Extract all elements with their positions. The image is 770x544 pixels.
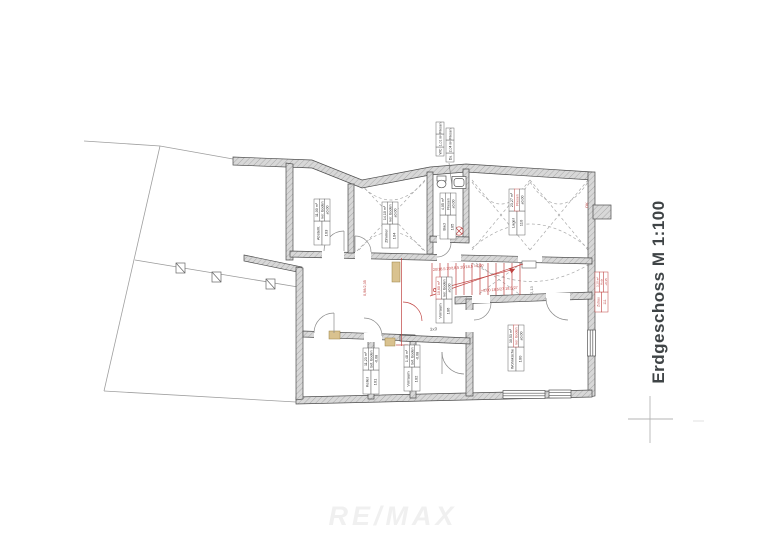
room-name: Du. <box>448 155 452 161</box>
parcel-boundary <box>84 141 296 402</box>
wc-toilet <box>437 180 446 188</box>
room-level: ±0,00 <box>448 284 452 293</box>
room-label-keller: Keller 101 11,23 m² bet. Boden -0,08 <box>363 348 379 394</box>
room-number: 106 <box>446 307 451 314</box>
room-level: ±0,00 <box>452 200 456 209</box>
dim-note: 3x9 <box>430 326 438 332</box>
room-floor: Fliesen <box>446 198 450 210</box>
room-label-zubau-red: Zubau 111 3,10 m² Holz +0,35 <box>595 272 608 312</box>
window-east <box>588 330 596 356</box>
floorplan-drawing: 20/18,5 20/18,5 20/18,5 +0,00 +0,00 18,5… <box>0 0 770 544</box>
ok-note: OK <box>584 202 589 208</box>
room-floor: ker. Boden <box>388 204 392 221</box>
crosshair-mark <box>628 396 704 443</box>
room-level: ±0,00 <box>521 196 525 205</box>
washbasin-inner <box>454 179 464 187</box>
room-level: ±0,00 <box>326 206 330 215</box>
room-number: 111 <box>603 299 607 304</box>
room-number: 102 <box>414 375 419 382</box>
wall-south <box>296 390 592 404</box>
room-name: Bad <box>442 223 447 230</box>
stair-note-bottom: +0,00 18,5/27 18,5/27 <box>481 286 518 293</box>
room-name: Wohnküche <box>511 349 515 369</box>
room-label-vorraum-2: Vorraum 102 1,48 m² bet. Boden -0,08 <box>404 345 420 391</box>
room-area: 11,23 m² <box>364 351 368 366</box>
room-name: WC <box>438 148 442 154</box>
room-name: Vorraum <box>406 371 411 387</box>
window-south-2 <box>549 390 571 398</box>
new-door-arc <box>403 302 422 321</box>
walls <box>233 157 611 404</box>
room-floor: Fliesen <box>515 194 519 206</box>
room-number: 100 <box>518 355 523 362</box>
room-label-wohnkueche: Wohnküche 100 30,53 m² ker. Boden ±0,00 <box>508 325 524 371</box>
room-name: Lager <box>511 217 516 228</box>
plan-title: Erdgeschoss M 1:100 <box>649 200 668 383</box>
boundary-south <box>104 391 296 402</box>
room-floor: Fliesen <box>438 122 442 133</box>
window-south-1 <box>503 391 545 399</box>
room-area: 10,60 m² <box>437 280 441 295</box>
room-name: Zubau <box>597 297 601 307</box>
room-area: 14,10 m² <box>383 205 387 220</box>
room-number: 101 <box>373 378 378 385</box>
room-label-lager: Lager 110 23,27 m² Fliesen ±0,00 <box>509 189 525 235</box>
room-floor: ker. Boden <box>514 327 518 344</box>
room-name: Vorraum <box>438 303 443 319</box>
boundary-north <box>84 141 233 159</box>
room-floor: ker. Boden <box>442 279 446 296</box>
room-name: Abstellr. <box>316 226 321 240</box>
room-label-abstellraum: Abstellr. 103 11,00 m² ker. Boden ±0,00 <box>314 199 330 245</box>
room-area: 1,01 m² <box>438 134 442 146</box>
room-level: +0,35 <box>604 278 608 286</box>
stair-note-top: 20/18,5 20/18,5 20/18,5 +0,00 <box>433 264 484 272</box>
room-level: -0,08 <box>416 352 420 360</box>
scanned-floorplan-page: 20/18,5 20/18,5 20/18,5 +0,00 +0,00 18,5… <box>0 0 770 544</box>
room-number: 110 <box>519 219 524 226</box>
room-floor: ker. Boden <box>320 201 324 218</box>
room-area: 23,27 m² <box>510 192 514 207</box>
room-area: 30,53 m² <box>509 328 513 343</box>
room-name: Keller <box>365 376 370 387</box>
wall-east-pier <box>593 205 611 219</box>
fence-post <box>266 279 275 289</box>
room-level: ±0,00 <box>394 209 398 218</box>
room-area: 11,00 m² <box>315 202 319 217</box>
fence-post <box>176 263 185 273</box>
room-level: -0,08 <box>375 355 379 363</box>
room-area: 1,48 m² <box>405 349 409 362</box>
wall-west-annex <box>296 267 303 400</box>
room-floor: bet. Boden <box>410 347 414 364</box>
boundary-west <box>104 146 160 391</box>
room-level: ±0,00 <box>520 332 524 341</box>
remax-watermark: RE/MAX <box>328 501 457 531</box>
room-label-bad: Bad 105 4,05 m² Fliesen ±0,00 <box>440 193 456 239</box>
room-area: 4,05 m² <box>441 197 445 210</box>
callout-label-wc: WC 1,01 m² Fliesen <box>436 122 444 156</box>
height-note: 2,13 <box>529 285 534 294</box>
wall-west <box>286 163 293 260</box>
room-label-zimmer: Zimmer 104 14,10 m² ker. Boden ±0,00 <box>382 202 398 248</box>
room-number: 103 <box>324 229 329 236</box>
room-number: 105 <box>450 223 455 230</box>
room-label-vorraum-stiege: Vorraum 106 10,60 m² ker. Boden ±0,00 <box>436 277 452 323</box>
wall-note: 0,98/2,35 <box>363 280 367 296</box>
callout-label-dusche: Du. 2,04 m² Fliesen <box>446 128 454 162</box>
wall-partition-ab <box>348 184 354 253</box>
room-area: 2,04 m² <box>448 140 452 152</box>
room-floor: Holz <box>600 279 604 286</box>
room-number: 104 <box>392 232 397 239</box>
room-name: Zimmer <box>384 229 389 243</box>
fence-post <box>212 272 221 282</box>
room-floor: Fliesen <box>448 128 452 139</box>
room-floor: bet. Boden <box>369 350 373 367</box>
